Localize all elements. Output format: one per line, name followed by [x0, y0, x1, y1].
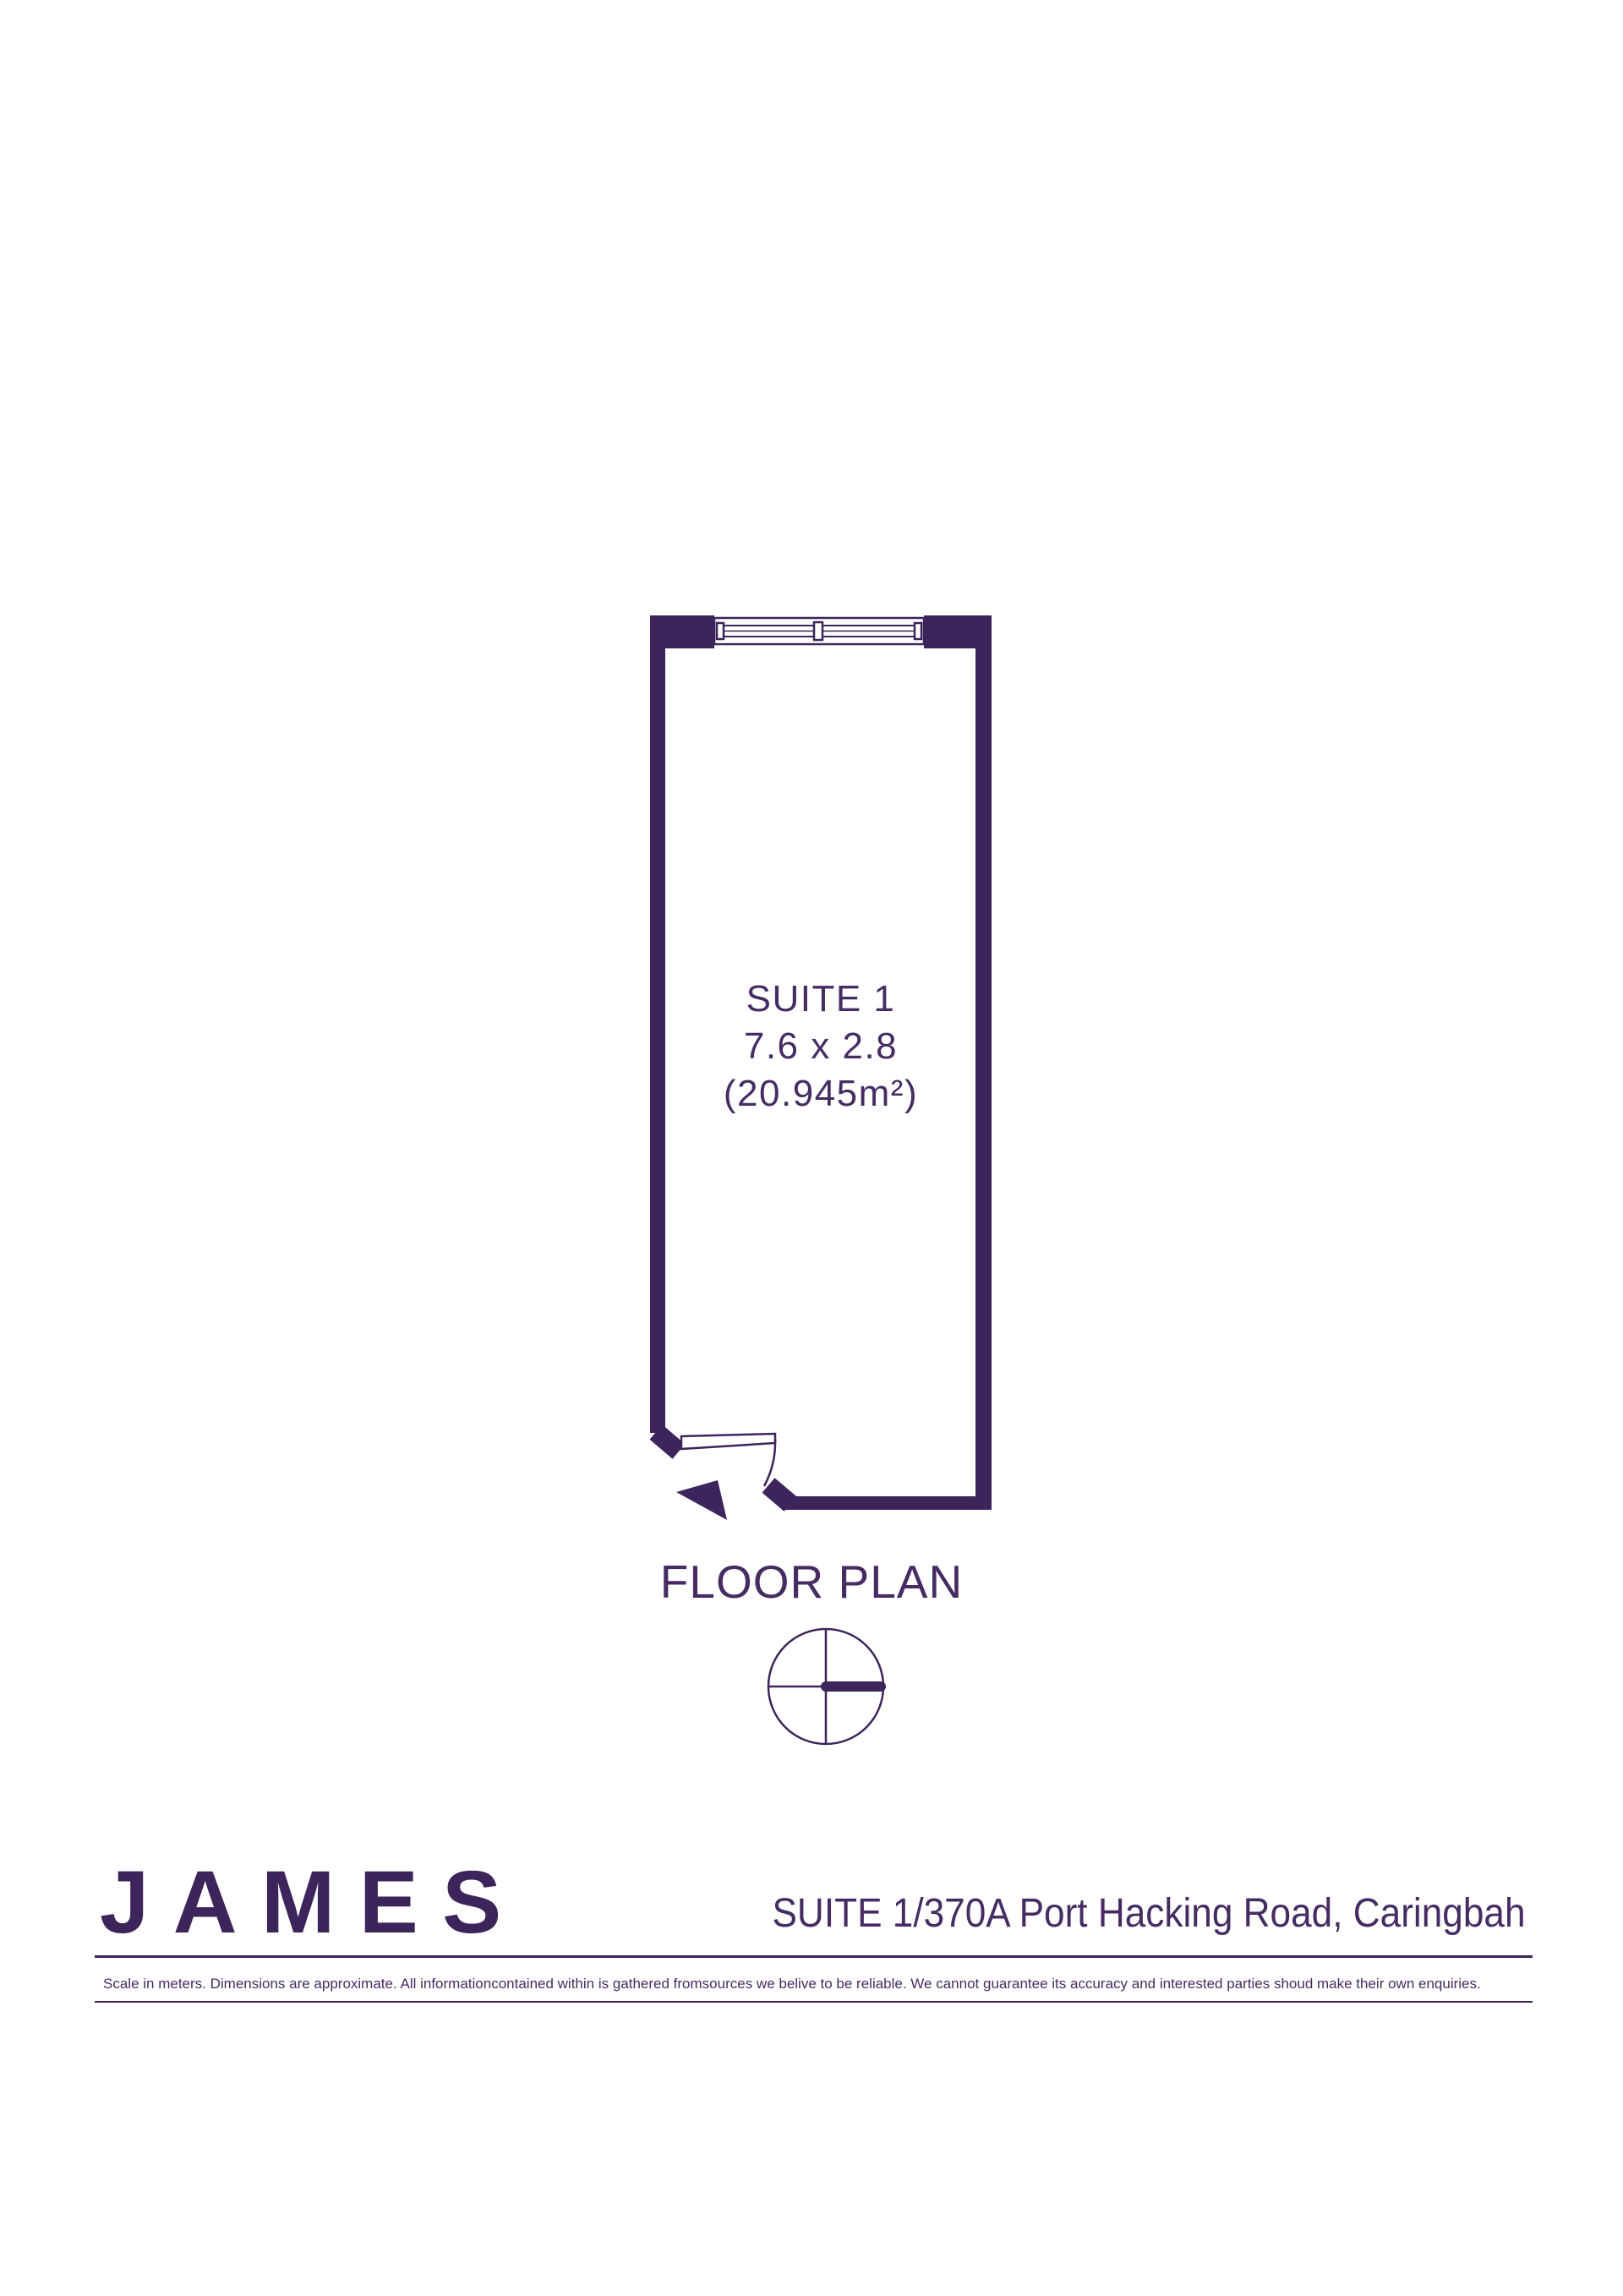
- wall-bottom: [782, 1496, 992, 1510]
- door-swing-icon: [681, 1434, 775, 1486]
- window-symbol: [714, 618, 924, 644]
- room-dimensions: 7.6 x 2.8: [652, 1023, 990, 1070]
- footer-divider-bottom: [95, 2001, 1533, 2003]
- wall-top-left-block: [650, 615, 714, 648]
- room-area: (20.945m²): [652, 1070, 990, 1118]
- window-cap-right: [915, 623, 921, 639]
- entry-arrow-icon: [676, 1480, 727, 1520]
- door-arc: [764, 1439, 775, 1486]
- door-jamb-lower: [768, 1485, 790, 1504]
- floor-plan-page: SUITE 1 7.6 x 2.8 (20.945m²) FLOOR PLAN …: [0, 0, 1623, 2296]
- property-address: SUITE 1/370A Port Hacking Road, Caringba…: [773, 1894, 1526, 1934]
- door-jamb-upper: [656, 1432, 679, 1451]
- footer-divider-top: [95, 1955, 1533, 1958]
- room-label: SUITE 1 7.6 x 2.8 (20.945m²): [652, 976, 990, 1118]
- door-leaf: [681, 1434, 775, 1449]
- compass-icon: [768, 1629, 883, 1744]
- window-cap-left: [717, 623, 724, 639]
- brand-logo: JAMES: [100, 1858, 526, 1947]
- room-name: SUITE 1: [652, 976, 990, 1023]
- disclaimer-text: Scale in meters. Dimensions are approxim…: [103, 1976, 1481, 1993]
- plan-caption: FLOOR PLAN: [642, 1559, 981, 1605]
- window-mullion-center: [814, 622, 822, 640]
